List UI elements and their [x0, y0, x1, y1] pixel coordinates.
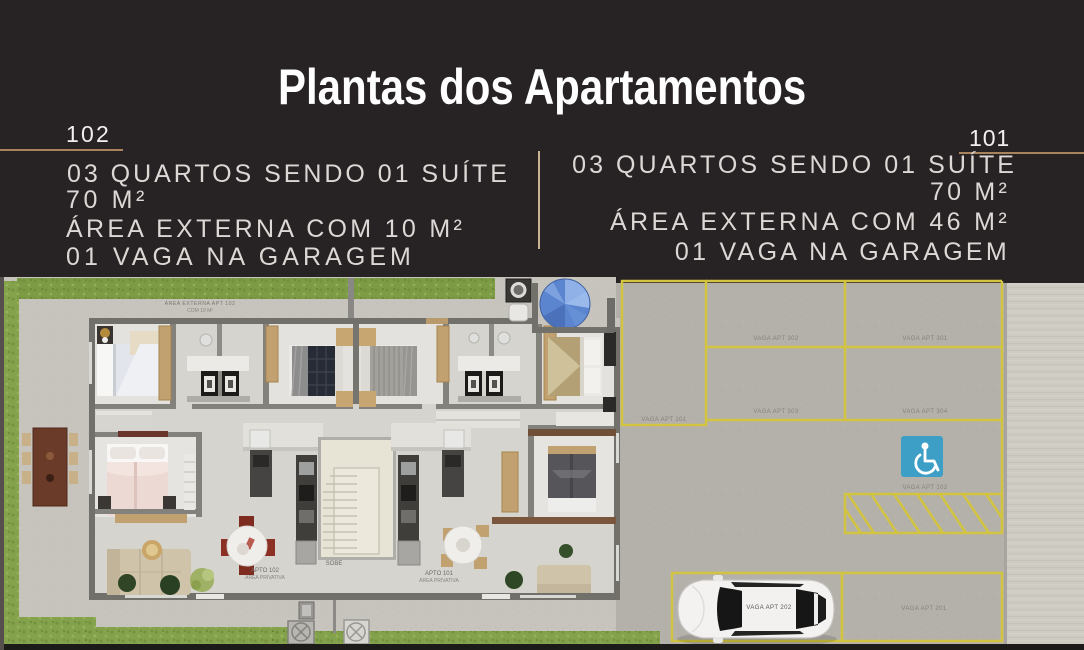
svg-text:VAGA APT 303: VAGA APT 303 [753, 409, 799, 415]
svg-text:VAGA APT 101: VAGA APT 101 [641, 417, 687, 423]
svg-text:ÁREA PRIVATIVA: ÁREA PRIVATIVA [245, 574, 285, 581]
svg-text:APTO 101: APTO 101 [425, 571, 454, 577]
svg-text:VAGA APT 302: VAGA APT 302 [753, 336, 799, 342]
svg-text:COM 10 M²: COM 10 M² [187, 308, 213, 314]
svg-text:ÁREA PRIVATIVA: ÁREA PRIVATIVA [419, 577, 459, 584]
svg-text:VAGA APT 202: VAGA APT 202 [746, 605, 792, 611]
svg-text:VAGA APT 301: VAGA APT 301 [902, 336, 948, 342]
svg-text:SOBE: SOBE [326, 561, 343, 567]
svg-text:APTO 102: APTO 102 [251, 568, 280, 574]
svg-text:VAGA APT 102: VAGA APT 102 [902, 485, 948, 491]
svg-text:VAGA APT 201: VAGA APT 201 [901, 606, 947, 612]
svg-text:VAGA APT 304: VAGA APT 304 [902, 409, 948, 415]
svg-text:ÁREA EXTERNA APT 102: ÁREA EXTERNA APT 102 [165, 300, 236, 307]
